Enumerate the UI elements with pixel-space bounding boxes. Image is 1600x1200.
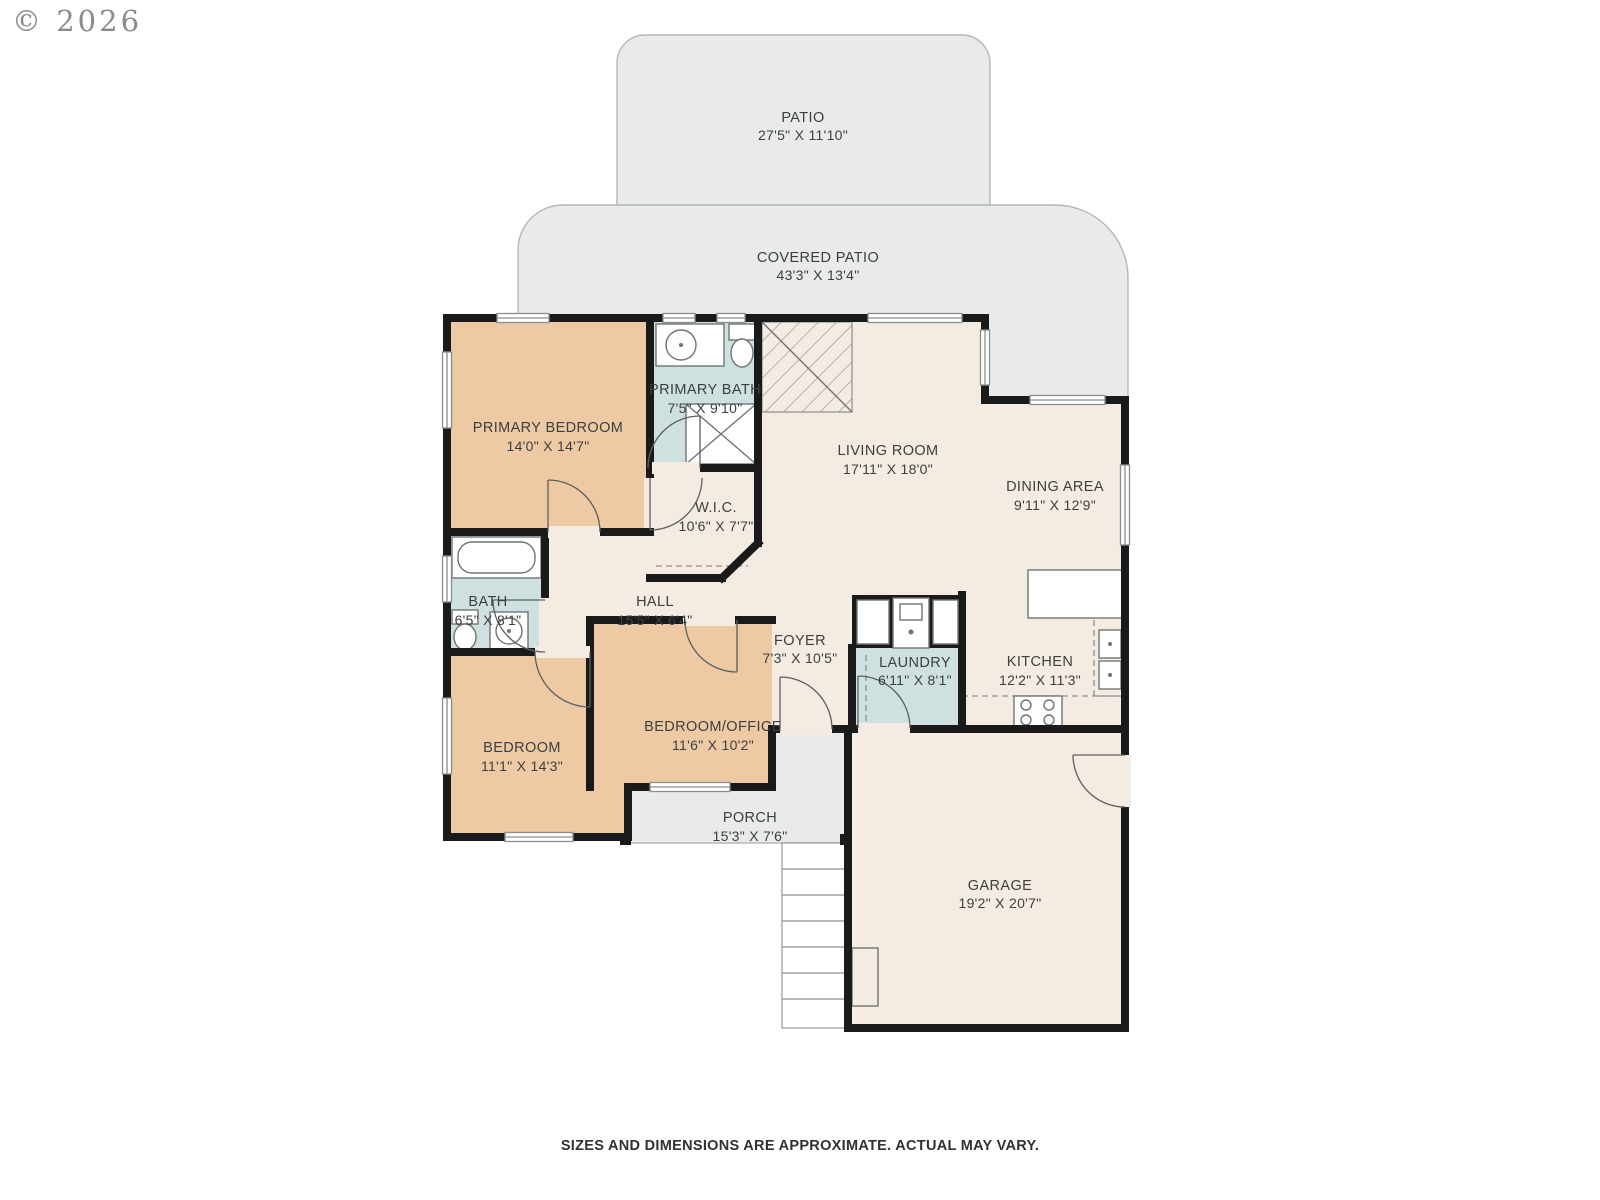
- stove-icon: [1014, 696, 1062, 728]
- sink-drain-3: [1108, 642, 1112, 646]
- hall-label: HALL: [636, 594, 674, 610]
- porch-post-right: [840, 834, 851, 845]
- foyer-label: FOYER: [774, 633, 826, 649]
- closet-door-panel-right: [933, 600, 958, 644]
- kitchen-dims: 12'2" X 11'3": [999, 672, 1081, 688]
- bath-label: BATH: [468, 594, 507, 610]
- porch-dims: 15'3" X 7'6": [713, 828, 788, 844]
- laundry-dims: 6'11" X 8'1": [878, 672, 952, 688]
- wic-label: W.I.C.: [695, 500, 737, 516]
- kitchen-peninsula: [1028, 570, 1125, 618]
- sink-drain-4: [1108, 673, 1112, 677]
- dining-area-dims: 9'11" X 12'9": [1014, 497, 1096, 513]
- primary-bath-dims: 7'5" X 9'10": [668, 400, 743, 416]
- patio-label: PATIO: [781, 110, 824, 126]
- dining-area-label: DINING AREA: [1006, 479, 1104, 495]
- stairs-icon: [782, 843, 848, 1028]
- bedroom-office-floor: [590, 620, 772, 787]
- bedroom-dims: 11'1" X 14'3": [481, 758, 563, 774]
- primary-bath-label: PRIMARY BATH: [649, 382, 761, 398]
- closet-door-panel-left: [857, 600, 889, 644]
- bedroom-office-label: BEDROOM/OFFICE: [644, 719, 782, 735]
- foyer-dims: 7'3" X 10'5": [763, 650, 838, 666]
- sink-drain-2: [507, 629, 511, 633]
- bath-dims: 6'5" X 8'1": [455, 612, 522, 628]
- living-room-label: LIVING ROOM: [837, 443, 938, 459]
- kitchen-label: KITCHEN: [1007, 654, 1073, 670]
- disclaimer-text: SIZES AND DIMENSIONS ARE APPROXIMATE. AC…: [0, 1138, 1600, 1154]
- floor-plan-drawing: PATIO 27'5" X 11'10" COVERED PATIO 43'3"…: [0, 0, 1600, 1200]
- bedroom-label: BEDROOM: [483, 740, 561, 756]
- toilet-icon: [731, 339, 753, 367]
- floor-plan-page: © 2026: [0, 0, 1600, 1200]
- covered-patio-dims: 43'3" X 13'4": [776, 267, 859, 283]
- laundry-closet: [852, 595, 962, 648]
- hall-dims: 15'5" X 6'4": [618, 612, 693, 628]
- garage-label: GARAGE: [968, 878, 1032, 894]
- porch-post-left: [620, 834, 631, 845]
- porch-label: PORCH: [723, 810, 777, 826]
- primary-bedroom-label: PRIMARY BEDROOM: [473, 420, 624, 436]
- toilet-tank: [729, 324, 755, 340]
- garage-dims: 19'2" X 20'7": [958, 895, 1041, 911]
- sink-drain: [679, 343, 683, 347]
- covered-patio-label: COVERED PATIO: [757, 250, 879, 266]
- patio-dims: 27'5" X 11'10": [758, 127, 848, 143]
- washer-icon: [893, 598, 929, 648]
- wic-dims: 10'6" X 7'7": [679, 518, 754, 534]
- primary-bedroom-dims: 14'0" X 14'7": [506, 438, 589, 454]
- living-room-dims: 17'11" X 18'0": [843, 461, 933, 477]
- bedroom-office-dims: 11'6" X 10'2": [672, 737, 754, 753]
- laundry-label: LAUNDRY: [879, 655, 951, 671]
- washer-knob: [909, 630, 914, 635]
